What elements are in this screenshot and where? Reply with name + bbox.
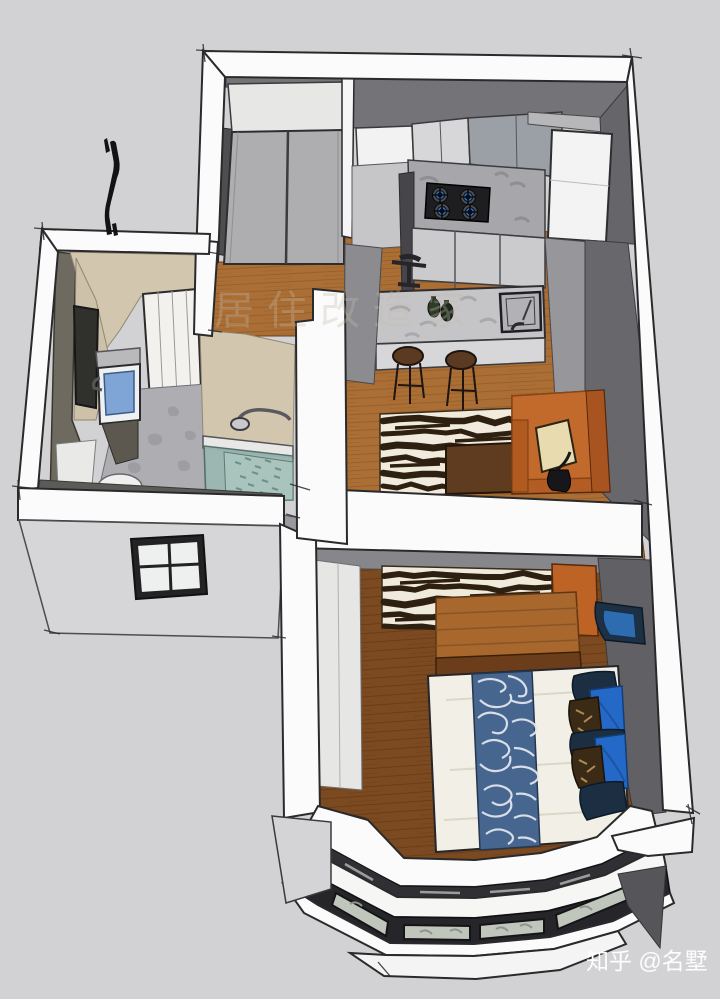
svg-text:居住改造家: 居住改造家 bbox=[214, 289, 479, 333]
svg-text:知乎 @名墅: 知乎 @名墅 bbox=[586, 948, 708, 974]
